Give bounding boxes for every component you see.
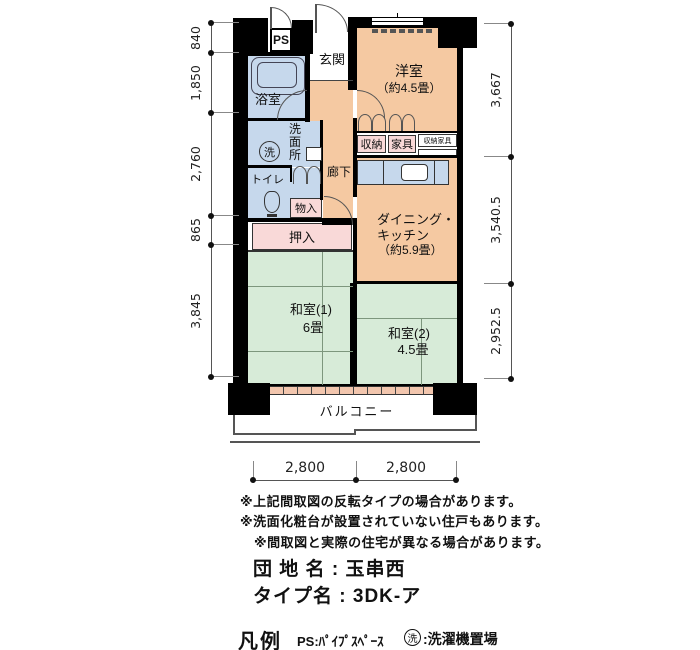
wall-yoshitsu-bottom [353,131,458,133]
balcony-side-right [475,415,477,431]
dim-right-2: 2,952.5 [489,301,503,361]
dim-dot [208,242,214,248]
kagu-door-arc-2 [402,114,415,131]
monoire-label: 物入 [290,200,322,216]
tatami-line [357,318,457,319]
shuno-door-arc-1 [358,114,372,131]
dim-dot [508,154,514,160]
dk-label-3: （約5.9畳） [378,241,443,258]
ps-label: PS [270,30,292,50]
dim-left-4: 3,845 [189,281,203,341]
kagu-label: 家具 [388,136,416,152]
dim-tick [484,156,511,157]
senmenjo-label: 洗面所 [288,123,302,162]
oshiire-label: 押入 [252,228,352,244]
note-3: ※間取図と実際の住宅が異なる場合があります。 [254,532,549,551]
dim-tick [213,112,239,113]
washitsu1-size: 6畳 [263,318,363,334]
wall-dk-washitsu1 [353,225,357,283]
entrance-door-leaf [315,4,317,33]
type-name: タイプ名 : 3DK-ア [253,581,421,608]
dim-left-1: 1,850 [189,53,203,113]
shuno-kagu-label: 収納家具 [418,135,457,146]
dim-tick [213,52,239,53]
legend-title: 凡例 [238,625,282,650]
yokushitsu-label: 浴室 [255,89,281,108]
vanity-box [306,147,322,161]
wall-dk-washitsu2 [357,281,457,284]
dim-tick [484,283,511,284]
counter-div-2 [434,160,435,185]
dim-dot [208,110,214,116]
yoshitsu-size: （約4.5畳） [359,80,459,94]
wall-left [233,18,248,388]
pillar-top-right [438,17,477,48]
danchi-name: 団 地 名 : 玉串西 [253,554,405,581]
balcony-side-left [233,415,235,435]
toire-label: トイレ [251,171,284,187]
dim-dot [208,20,214,26]
line-oshiire-washitsu1 [248,250,353,252]
dim-tick [213,376,239,377]
toilet-icon [264,191,280,213]
wall-toilet-stub [290,168,292,182]
laundry-circle: 洗 [259,141,280,162]
dim-right-line [511,24,512,379]
room-hall-upper [310,81,353,122]
balcony-label: バルコニー [307,402,407,418]
window-top-tick [397,13,398,18]
wall-toilet-oshiire [246,218,322,222]
yoshitsu-label: 洋室 [359,63,459,79]
dim-left-2: 2,760 [189,134,203,194]
dim-left-line [211,23,212,377]
kagu-door-arc-1 [389,114,402,131]
toilet-door-arc-2 [307,166,321,184]
tatami-line [248,286,353,287]
dim-bottom-1: 2,800 [366,460,446,476]
laundry-symbol: 洗 [264,144,275,160]
tatami-line [248,351,353,352]
legend-laundry-desc: :洗濯機置場 [423,629,498,649]
rouka-label: 廊下 [327,163,351,180]
dim-right-0: 3,667 [489,60,503,120]
dim-tick [213,244,239,245]
wall-bath-top [246,52,308,56]
legend-ps: PS:ﾊﾟｲﾌﾟｽﾍﾟｰｽ [297,631,384,650]
shuno-door-arc-2 [372,114,386,131]
dim-tick [213,215,239,216]
washitsu2-size: 4.5畳 [363,340,463,356]
balcony-outer-line [230,441,480,443]
counter-div-1 [383,160,384,185]
legend-laundry-symbol: 洗 [408,630,418,645]
wall-washitsu1-washitsu2 [350,283,357,387]
balcony-edge-right [355,429,477,431]
entrance-door-arc [316,4,348,32]
ps-door-leaf [270,7,272,29]
dim-tick [213,22,239,23]
dim-dot [453,477,459,483]
curtain-rail [372,29,434,33]
line-genkan-step [310,80,353,81]
dim-dot [208,213,214,219]
shuno-label: 収納 [357,136,386,152]
toilet-base [267,214,277,217]
legend-laundry-circle: 洗 [404,629,421,646]
balcony-window-strip [270,386,433,395]
wall-senmen-toilet [246,165,292,168]
ps-door-arc [271,7,292,28]
washitsu1-label: 和室(1) [261,300,361,316]
dim-dot [508,21,514,27]
pillar-bottom-left [228,383,270,415]
balcony-edge-left [233,433,355,435]
pillar-bottom-right [433,383,477,415]
dim-tick [484,23,511,24]
dim-tick [484,378,511,379]
window-top-mid [372,21,423,22]
genkan-label: 玄関 [312,50,352,66]
kitchen-sink [401,164,428,181]
dim-left-3: 865 [189,200,203,260]
dim-dot [250,477,256,483]
toilet-door-arc-1 [293,166,307,184]
note-1: ※上記間取図の反転タイプの場合があります。 [240,491,522,510]
dim-bottom-0: 2,800 [265,460,345,476]
note-2: ※洗面化粧台が設置されていない住戸もあります。 [240,511,548,530]
dim-dot [508,281,514,287]
dim-dot [508,376,514,382]
dim-dot [353,477,359,483]
dim-right-1: 3,540.5 [489,190,503,250]
wall-shuno-bottom [353,155,458,158]
dim-dot [208,50,214,56]
floorplan-page: 洗 PS 玄関 洋室 （約4.5畳） 浴室 洗面所 トイレ 物入 押入 廊下 収… [0,0,700,650]
dim-dot [208,374,214,380]
